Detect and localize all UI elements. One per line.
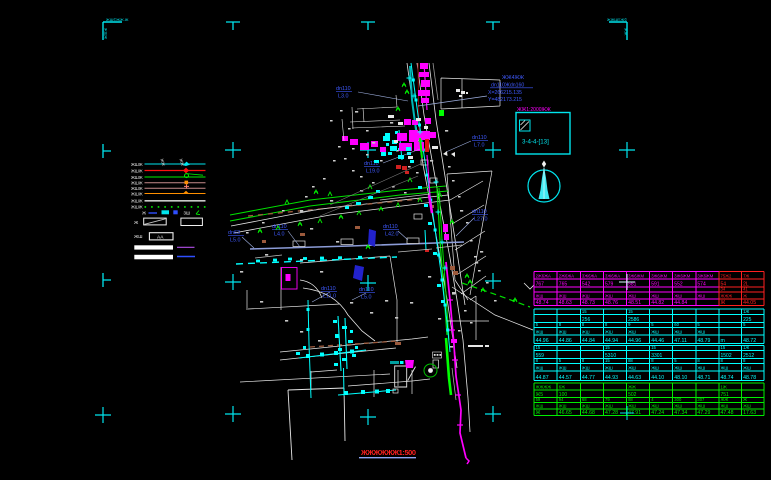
svg-text:48.74: 48.74: [536, 300, 549, 306]
svg-text:L3.0: L3.0: [338, 94, 349, 100]
svg-text:1Ж: 1Ж: [721, 384, 727, 389]
svg-text:L7.0: L7.0: [474, 143, 485, 149]
svg-text:574: 574: [697, 281, 706, 287]
svg-text:ЖШЖ: ЖШЖ: [104, 28, 109, 39]
svg-text:44.63: 44.63: [628, 375, 641, 381]
svg-text:ЖШ: ЖШ: [674, 365, 682, 370]
svg-text:3Ш: 3Ш: [184, 211, 190, 216]
svg-text:15: 15: [721, 345, 726, 350]
svg-text:ЖШ: ЖШ: [651, 365, 659, 370]
svg-text:48.79: 48.79: [697, 338, 710, 344]
svg-text:ЖШ: ЖШ: [605, 329, 613, 334]
svg-text:3Ж6ЖM: 3Ж6ЖM: [674, 273, 690, 278]
svg-text:48.51: 48.51: [628, 300, 641, 306]
svg-text:15: 15: [536, 345, 541, 350]
svg-text:ЖЖЖ: ЖЖЖ: [721, 293, 733, 298]
svg-text:ЖШ: ЖШ: [605, 365, 613, 370]
svg-text:ЖШ: ЖШ: [628, 403, 636, 408]
svg-text:15: 15: [605, 358, 610, 363]
svg-text:3Ж6ЖM: 3Ж6ЖM: [697, 273, 713, 278]
svg-text:ЖШ: ЖШ: [536, 365, 544, 370]
svg-text:L11.0: L11.0: [323, 294, 336, 300]
svg-text:44.68: 44.68: [582, 410, 595, 416]
svg-text:47.48: 47.48: [721, 410, 734, 416]
svg-text:579: 579: [605, 281, 614, 287]
svg-text:59: 59: [536, 397, 541, 402]
svg-text:L5.0: L5.0: [361, 295, 372, 301]
svg-text:552: 552: [674, 281, 683, 287]
svg-text:44.10: 44.10: [651, 375, 664, 381]
svg-text:ЖЖЖЖ: ЖЖЖЖ: [536, 384, 552, 389]
svg-text:15: 15: [605, 345, 610, 350]
svg-text:3Ж6ЖM: 3Ж6ЖM: [651, 273, 667, 278]
svg-text:48.10: 48.10: [674, 375, 687, 381]
svg-text:15: 15: [651, 345, 656, 350]
svg-text:ЖШ: ЖШ: [582, 293, 590, 298]
svg-text:L42.0: L42.0: [385, 232, 399, 238]
svg-text:88: 88: [628, 358, 633, 363]
svg-text:ЖШ: ЖШ: [743, 403, 751, 408]
svg-text:44.87: 44.87: [536, 375, 549, 381]
svg-text:ЖШ: ЖШ: [559, 293, 567, 298]
svg-text:591: 591: [651, 281, 660, 287]
svg-text:767: 767: [536, 281, 545, 287]
svg-text:ЖШЖ: ЖШЖ: [131, 199, 143, 204]
svg-text:ЖШЖ: ЖШЖ: [131, 168, 143, 173]
svg-text:765: 765: [559, 281, 568, 287]
svg-text:ЖШ: ЖШ: [721, 403, 729, 408]
svg-text:m: m: [721, 338, 725, 344]
svg-text:X=266215.135: X=266215.135: [488, 90, 522, 96]
svg-text:AA: AA: [157, 234, 164, 240]
svg-text:L4.0: L4.0: [274, 232, 285, 238]
svg-text:ЖШ: ЖШ: [536, 293, 544, 298]
svg-text:47.28: 47.28: [605, 410, 618, 416]
svg-text:ЖШ: ЖШ: [559, 329, 567, 334]
svg-text:ЖШ: ЖШ: [651, 403, 659, 408]
svg-text:44.46: 44.46: [651, 338, 664, 344]
svg-text:47.11: 47.11: [674, 338, 687, 344]
svg-text:ЖШ: ЖШ: [628, 293, 636, 298]
svg-text:44.05: 44.05: [743, 300, 756, 306]
svg-text:48.73: 48.73: [582, 300, 595, 306]
svg-text:L5.0: L5.0: [230, 238, 241, 244]
svg-text:ЖШ: ЖШ: [743, 365, 751, 370]
svg-text:47.29: 47.29: [697, 410, 710, 416]
svg-text:ЖШЖ: ЖШЖ: [131, 186, 143, 191]
svg-text:ЖШ: ЖШ: [605, 403, 613, 408]
svg-text:44.84: 44.84: [582, 338, 595, 344]
svg-text:17.63: 17.63: [743, 410, 756, 416]
svg-text:48.78: 48.78: [743, 375, 756, 381]
svg-text:15: 15: [582, 309, 587, 314]
svg-text:L27.0: L27.0: [474, 217, 488, 223]
svg-text:48.74: 48.74: [721, 375, 734, 381]
svg-text:3Ж6ЖM: 3Ж6ЖM: [628, 273, 644, 278]
svg-text:ЖШ: ЖШ: [559, 365, 567, 370]
svg-text:79: 79: [605, 397, 610, 402]
svg-text:ЖЖ4ЖЖ: ЖЖ4ЖЖ: [502, 75, 524, 81]
svg-text:ЖШ: ЖШ: [697, 293, 705, 298]
svg-text:68: 68: [582, 397, 587, 402]
svg-text:542: 542: [582, 281, 591, 287]
svg-text:307: 307: [697, 397, 705, 402]
svg-text:ЖШЖ: ЖШЖ: [131, 191, 143, 196]
svg-text:ЖШЖ: ЖШЖ: [131, 205, 143, 210]
svg-text:L19.0: L19.0: [366, 169, 380, 175]
svg-text:88: 88: [628, 397, 633, 402]
svg-text:1Ж: 1Ж: [743, 345, 749, 350]
svg-text:ЖШ: ЖШ: [559, 403, 567, 408]
svg-text:44.96: 44.96: [628, 338, 641, 344]
svg-text:6Ж: 6Ж: [559, 384, 565, 389]
svg-text:Ж: Ж: [743, 293, 747, 298]
svg-text:ЖШ: ЖШ: [628, 329, 636, 334]
svg-text:ЖЖШ≡Ж©: ЖЖШ≡Ж©: [607, 17, 627, 22]
svg-text:ЖШ: ЖШ: [674, 293, 682, 298]
svg-text:ЖШ: ЖШ: [605, 293, 613, 298]
svg-text:ЖЖ: ЖЖ: [721, 397, 729, 402]
svg-text:ЖШ: ЖШ: [697, 403, 705, 408]
svg-text:44.77: 44.77: [582, 375, 595, 381]
svg-text:ЖЖЖЖЖЖ1:500: ЖЖЖЖЖЖ1:500: [360, 448, 416, 457]
svg-text:48.63: 48.63: [559, 300, 572, 306]
svg-text:47.34: 47.34: [674, 410, 687, 416]
svg-text:ЖШ: ЖШ: [721, 365, 729, 370]
svg-text:Y=482173.215: Y=482173.215: [488, 97, 522, 103]
svg-text:ЖШ: ЖШ: [697, 365, 705, 370]
svg-text:Ж: Ж: [142, 211, 146, 216]
svg-text:60: 60: [674, 322, 679, 327]
svg-text:ЖШ: ЖШ: [651, 293, 659, 298]
svg-text:44.94: 44.94: [605, 338, 618, 344]
svg-text:3Ж6ЖA: 3Ж6ЖA: [582, 273, 597, 278]
svg-text:300: 300: [674, 397, 682, 402]
svg-text:1Ж: 1Ж: [743, 309, 749, 314]
svg-text:15: 15: [628, 309, 633, 314]
svg-text:ЖШ: ЖШ: [582, 365, 590, 370]
svg-text:ЖШЖ: ЖШЖ: [131, 162, 143, 167]
svg-text:ЖШ: ЖШ: [651, 329, 659, 334]
svg-text:Ж: Ж: [536, 410, 541, 416]
svg-text:7Ж: 7Ж: [743, 273, 749, 278]
svg-text:47.24: 47.24: [651, 410, 664, 416]
svg-text:ЖШ: ЖШ: [628, 365, 636, 370]
svg-text:ЖШ: ЖШ: [674, 403, 682, 408]
svg-text:48.71: 48.71: [697, 375, 710, 381]
svg-text:2Ж6ЖA: 2Ж6ЖA: [536, 273, 551, 278]
svg-text:ЖШ: ЖШ: [134, 234, 142, 239]
svg-text:ЖШ: ЖШ: [697, 329, 705, 334]
svg-text:44.82: 44.82: [651, 300, 664, 306]
svg-text:41: 41: [743, 286, 748, 291]
svg-text:Ж: Ж: [743, 397, 747, 402]
svg-text:34: 34: [721, 286, 726, 291]
svg-text:ЖШ: ЖШ: [582, 403, 590, 408]
svg-text:44.84: 44.84: [674, 300, 687, 306]
svg-text:ЖЖ: ЖЖ: [628, 384, 636, 389]
svg-text:2Ж6ЖA: 2Ж6ЖA: [559, 273, 574, 278]
svg-text:46.65: 46.65: [559, 410, 572, 416]
svg-text:44.96: 44.96: [536, 338, 549, 344]
svg-text:3-4-4-[13]: 3-4-4-[13]: [522, 139, 549, 146]
svg-text:48.76: 48.76: [605, 300, 618, 306]
svg-text:ЖШ: ЖШ: [536, 403, 544, 408]
svg-text:48.72: 48.72: [743, 338, 756, 344]
svg-text:ЖШЖ: ЖШЖ: [131, 175, 143, 180]
svg-text:ЖЖ: ЖЖ: [624, 28, 629, 36]
svg-text:ЖШ: ЖШ: [536, 329, 544, 334]
svg-text:3Ж6ЖA: 3Ж6ЖA: [605, 273, 620, 278]
svg-text:Ж: Ж: [721, 300, 726, 306]
svg-text:44.93: 44.93: [605, 375, 618, 381]
svg-text:ЖШ©ЖЖ.Ж: ЖШ©ЖЖ.Ж: [106, 17, 129, 22]
svg-text:ЖШЖ: ЖШЖ: [131, 181, 143, 186]
svg-text:ЖШ: ЖШ: [582, 329, 590, 334]
svg-text:44.86: 44.86: [559, 338, 572, 344]
svg-text:44.57: 44.57: [559, 375, 572, 381]
svg-text:94: 94: [559, 397, 564, 402]
svg-text:ЖШ: ЖШ: [674, 329, 682, 334]
svg-text:75Ж2: 75Ж2: [721, 273, 733, 278]
